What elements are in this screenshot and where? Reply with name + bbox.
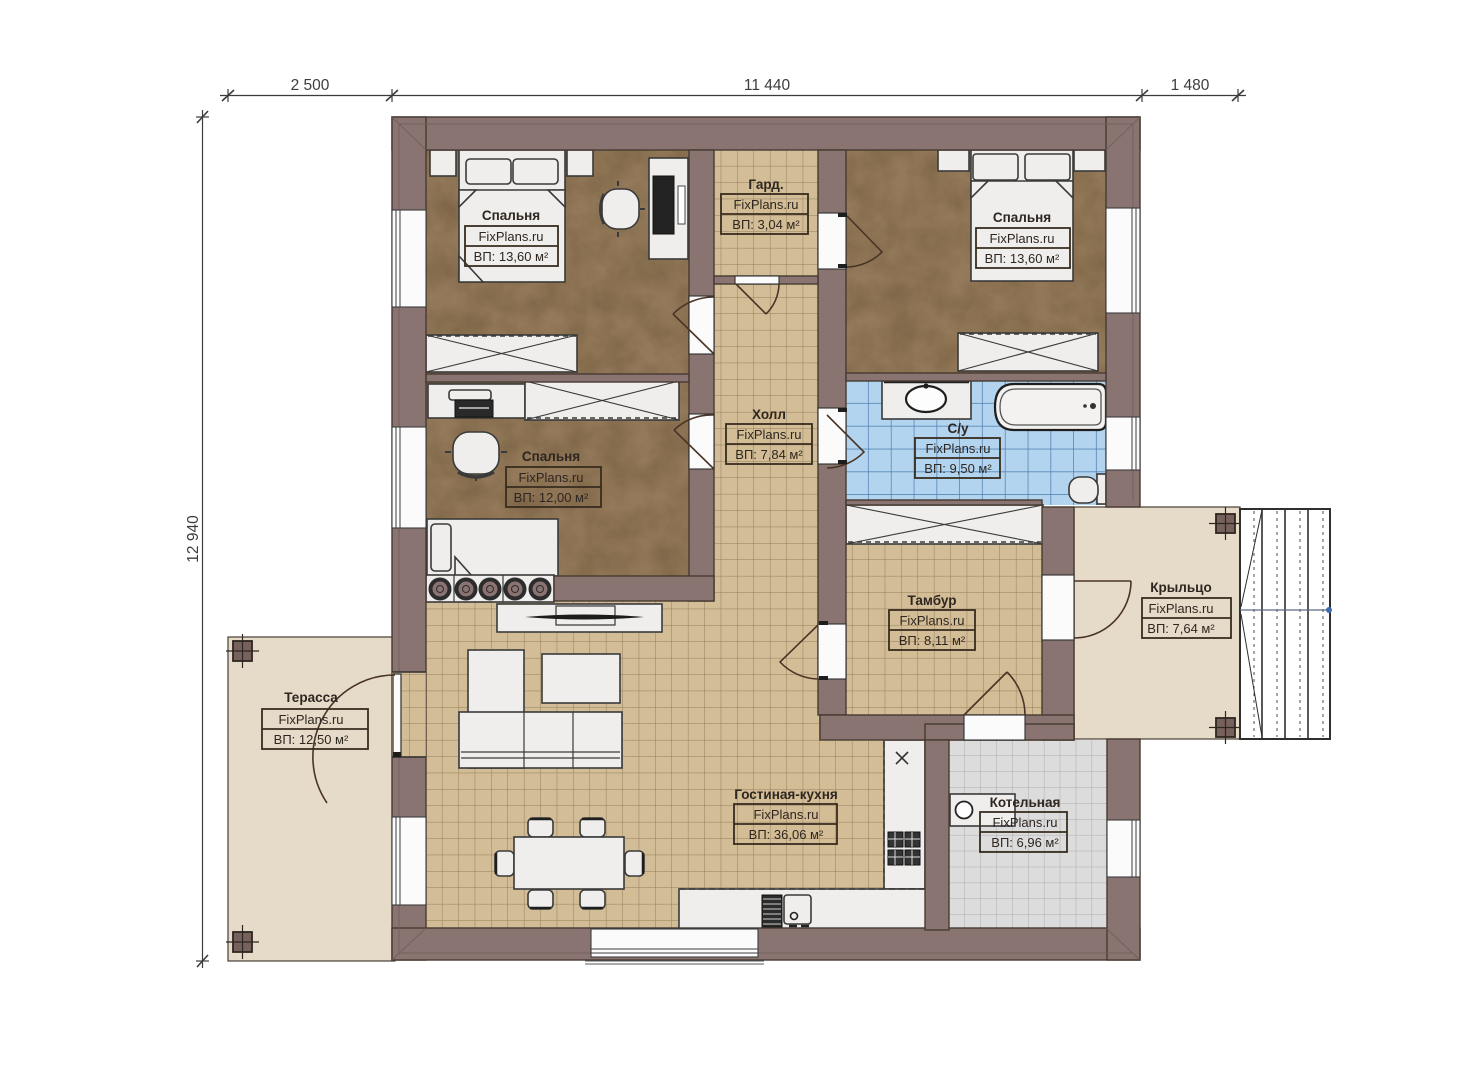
- svg-text:1 480: 1 480: [1171, 77, 1210, 94]
- svg-text:FixPlans.ru: FixPlans.ru: [478, 229, 543, 244]
- svg-text:ВП: 12,00 м²: ВП: 12,00 м²: [514, 490, 589, 505]
- svg-text:2 500: 2 500: [291, 77, 330, 94]
- svg-text:Терасса: Терасса: [284, 690, 338, 705]
- svg-text:С/у: С/у: [947, 421, 969, 436]
- svg-text:FixPlans.ru: FixPlans.ru: [278, 712, 343, 727]
- svg-text:Крыльцо: Крыльцо: [1150, 580, 1211, 595]
- svg-text:ВП: 8,11 м²: ВП: 8,11 м²: [899, 633, 966, 648]
- svg-text:ВП: 36,06 м²: ВП: 36,06 м²: [749, 827, 824, 842]
- svg-text:ВП: 9,50 м²: ВП: 9,50 м²: [924, 461, 992, 476]
- svg-text:ВП: 13,60 м²: ВП: 13,60 м²: [474, 249, 549, 264]
- svg-text:ВП: 3,04 м²: ВП: 3,04 м²: [732, 217, 800, 232]
- svg-text:ВП: 6,96 м²: ВП: 6,96 м²: [991, 835, 1059, 850]
- svg-text:ВП: 7,84 м²: ВП: 7,84 м²: [735, 447, 803, 462]
- svg-text:FixPlans.ru: FixPlans.ru: [899, 613, 964, 628]
- svg-text:Спальня: Спальня: [522, 449, 580, 464]
- svg-text:FixPlans.ru: FixPlans.ru: [518, 470, 583, 485]
- svg-text:FixPlans.ru: FixPlans.ru: [733, 197, 798, 212]
- svg-text:ВП: 12,50 м²: ВП: 12,50 м²: [274, 732, 349, 747]
- svg-text:Спальня: Спальня: [482, 208, 540, 223]
- svg-text:11 440: 11 440: [744, 77, 791, 94]
- svg-text:Холл: Холл: [752, 407, 786, 422]
- svg-text:Котельная: Котельная: [990, 795, 1061, 810]
- svg-text:Гостиная-кухня: Гостиная-кухня: [734, 787, 837, 802]
- svg-text:ВП: 13,60 м²: ВП: 13,60 м²: [985, 251, 1060, 266]
- svg-text:Спальня: Спальня: [993, 210, 1051, 225]
- svg-text:FixPlans.ru: FixPlans.ru: [1148, 601, 1213, 616]
- svg-text:FixPlans.ru: FixPlans.ru: [753, 807, 818, 822]
- svg-text:FixPlans.ru: FixPlans.ru: [989, 231, 1054, 246]
- svg-text:ВП: 7,64 м²: ВП: 7,64 м²: [1147, 621, 1215, 636]
- svg-text:FixPlans.ru: FixPlans.ru: [736, 427, 801, 442]
- svg-text:12 940: 12 940: [185, 515, 202, 563]
- svg-text:Гард.: Гард.: [748, 177, 783, 192]
- svg-text:FixPlans.ru: FixPlans.ru: [925, 441, 990, 456]
- svg-text:Тамбур: Тамбур: [908, 593, 957, 608]
- svg-text:FixPlans.ru: FixPlans.ru: [992, 815, 1057, 830]
